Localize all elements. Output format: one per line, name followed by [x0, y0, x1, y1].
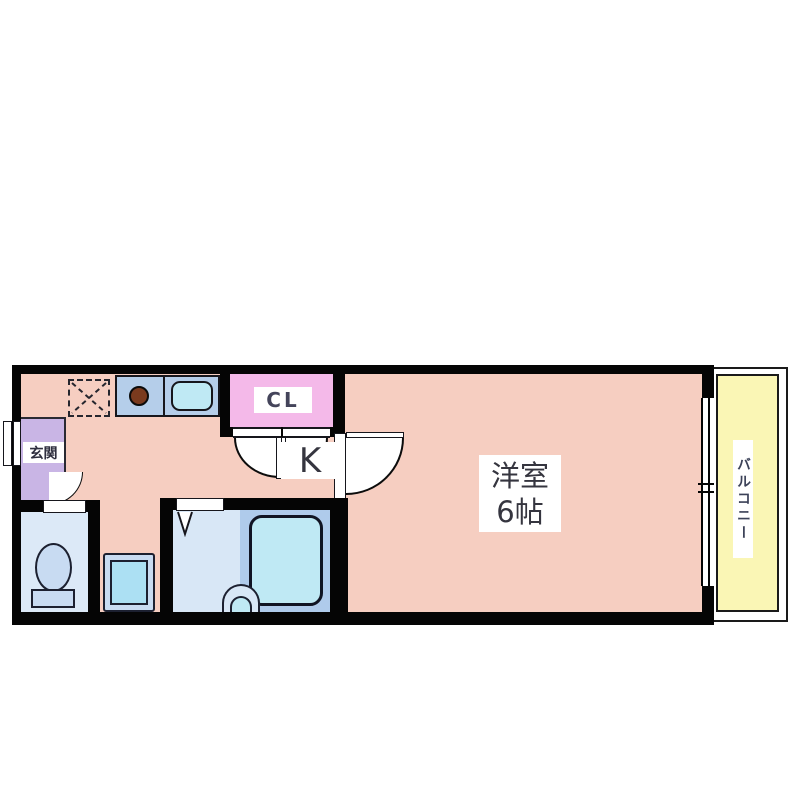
wall-bottom [12, 612, 714, 625]
wall-left [12, 365, 21, 625]
main-room-size: 6帖 [491, 494, 549, 530]
washing-machine-icon [110, 560, 148, 605]
bath-doorway [176, 498, 224, 511]
bathtub-icon [249, 515, 323, 606]
floorplan: 玄関 K CL 洋室 6帖 バルコニー [0, 0, 800, 800]
main-room-name: 洋室 [491, 458, 549, 494]
bath-wall-right [330, 498, 348, 612]
balcony-label: バルコニー [733, 440, 753, 558]
toilet-wall-right [88, 500, 100, 612]
closet-wall-left [220, 365, 230, 427]
bath-basin-icon [230, 596, 252, 612]
refrigerator-space [68, 379, 110, 417]
closet-label: CL [254, 387, 312, 413]
entry-door-outer-leaf [3, 421, 12, 466]
wall-top [12, 365, 714, 374]
main-room-label: 洋室 6帖 [479, 455, 561, 532]
main-room-label-lines: 洋室 6帖 [491, 458, 549, 530]
bath-wall-left [160, 498, 173, 612]
entrance-label-text: 玄関 [30, 443, 58, 463]
closet-label-text: CL [266, 388, 299, 412]
counter-divider [163, 377, 165, 415]
kitchen-label: K [281, 442, 339, 479]
wall-right-lower [702, 586, 714, 612]
entry-door-inner-leaf [13, 421, 21, 466]
window-center-mark [698, 491, 714, 493]
toilet-bowl-icon [35, 543, 72, 592]
refrigerator-cross-icon [70, 381, 108, 415]
balcony-label-text: バルコニー [733, 457, 753, 542]
closet-wall-bottom-left-stub [220, 427, 234, 437]
wall-right-upper [702, 365, 714, 398]
window-center-mark [698, 483, 714, 485]
kitchen-sink [171, 381, 213, 411]
bath-folding-door-icon [176, 511, 196, 537]
kitchen-label-text: K [299, 441, 321, 481]
entrance-label: 玄関 [23, 442, 64, 463]
toilet-doorway [43, 500, 86, 513]
stove-burner-icon [129, 386, 149, 406]
toilet-tank-icon [31, 589, 75, 608]
